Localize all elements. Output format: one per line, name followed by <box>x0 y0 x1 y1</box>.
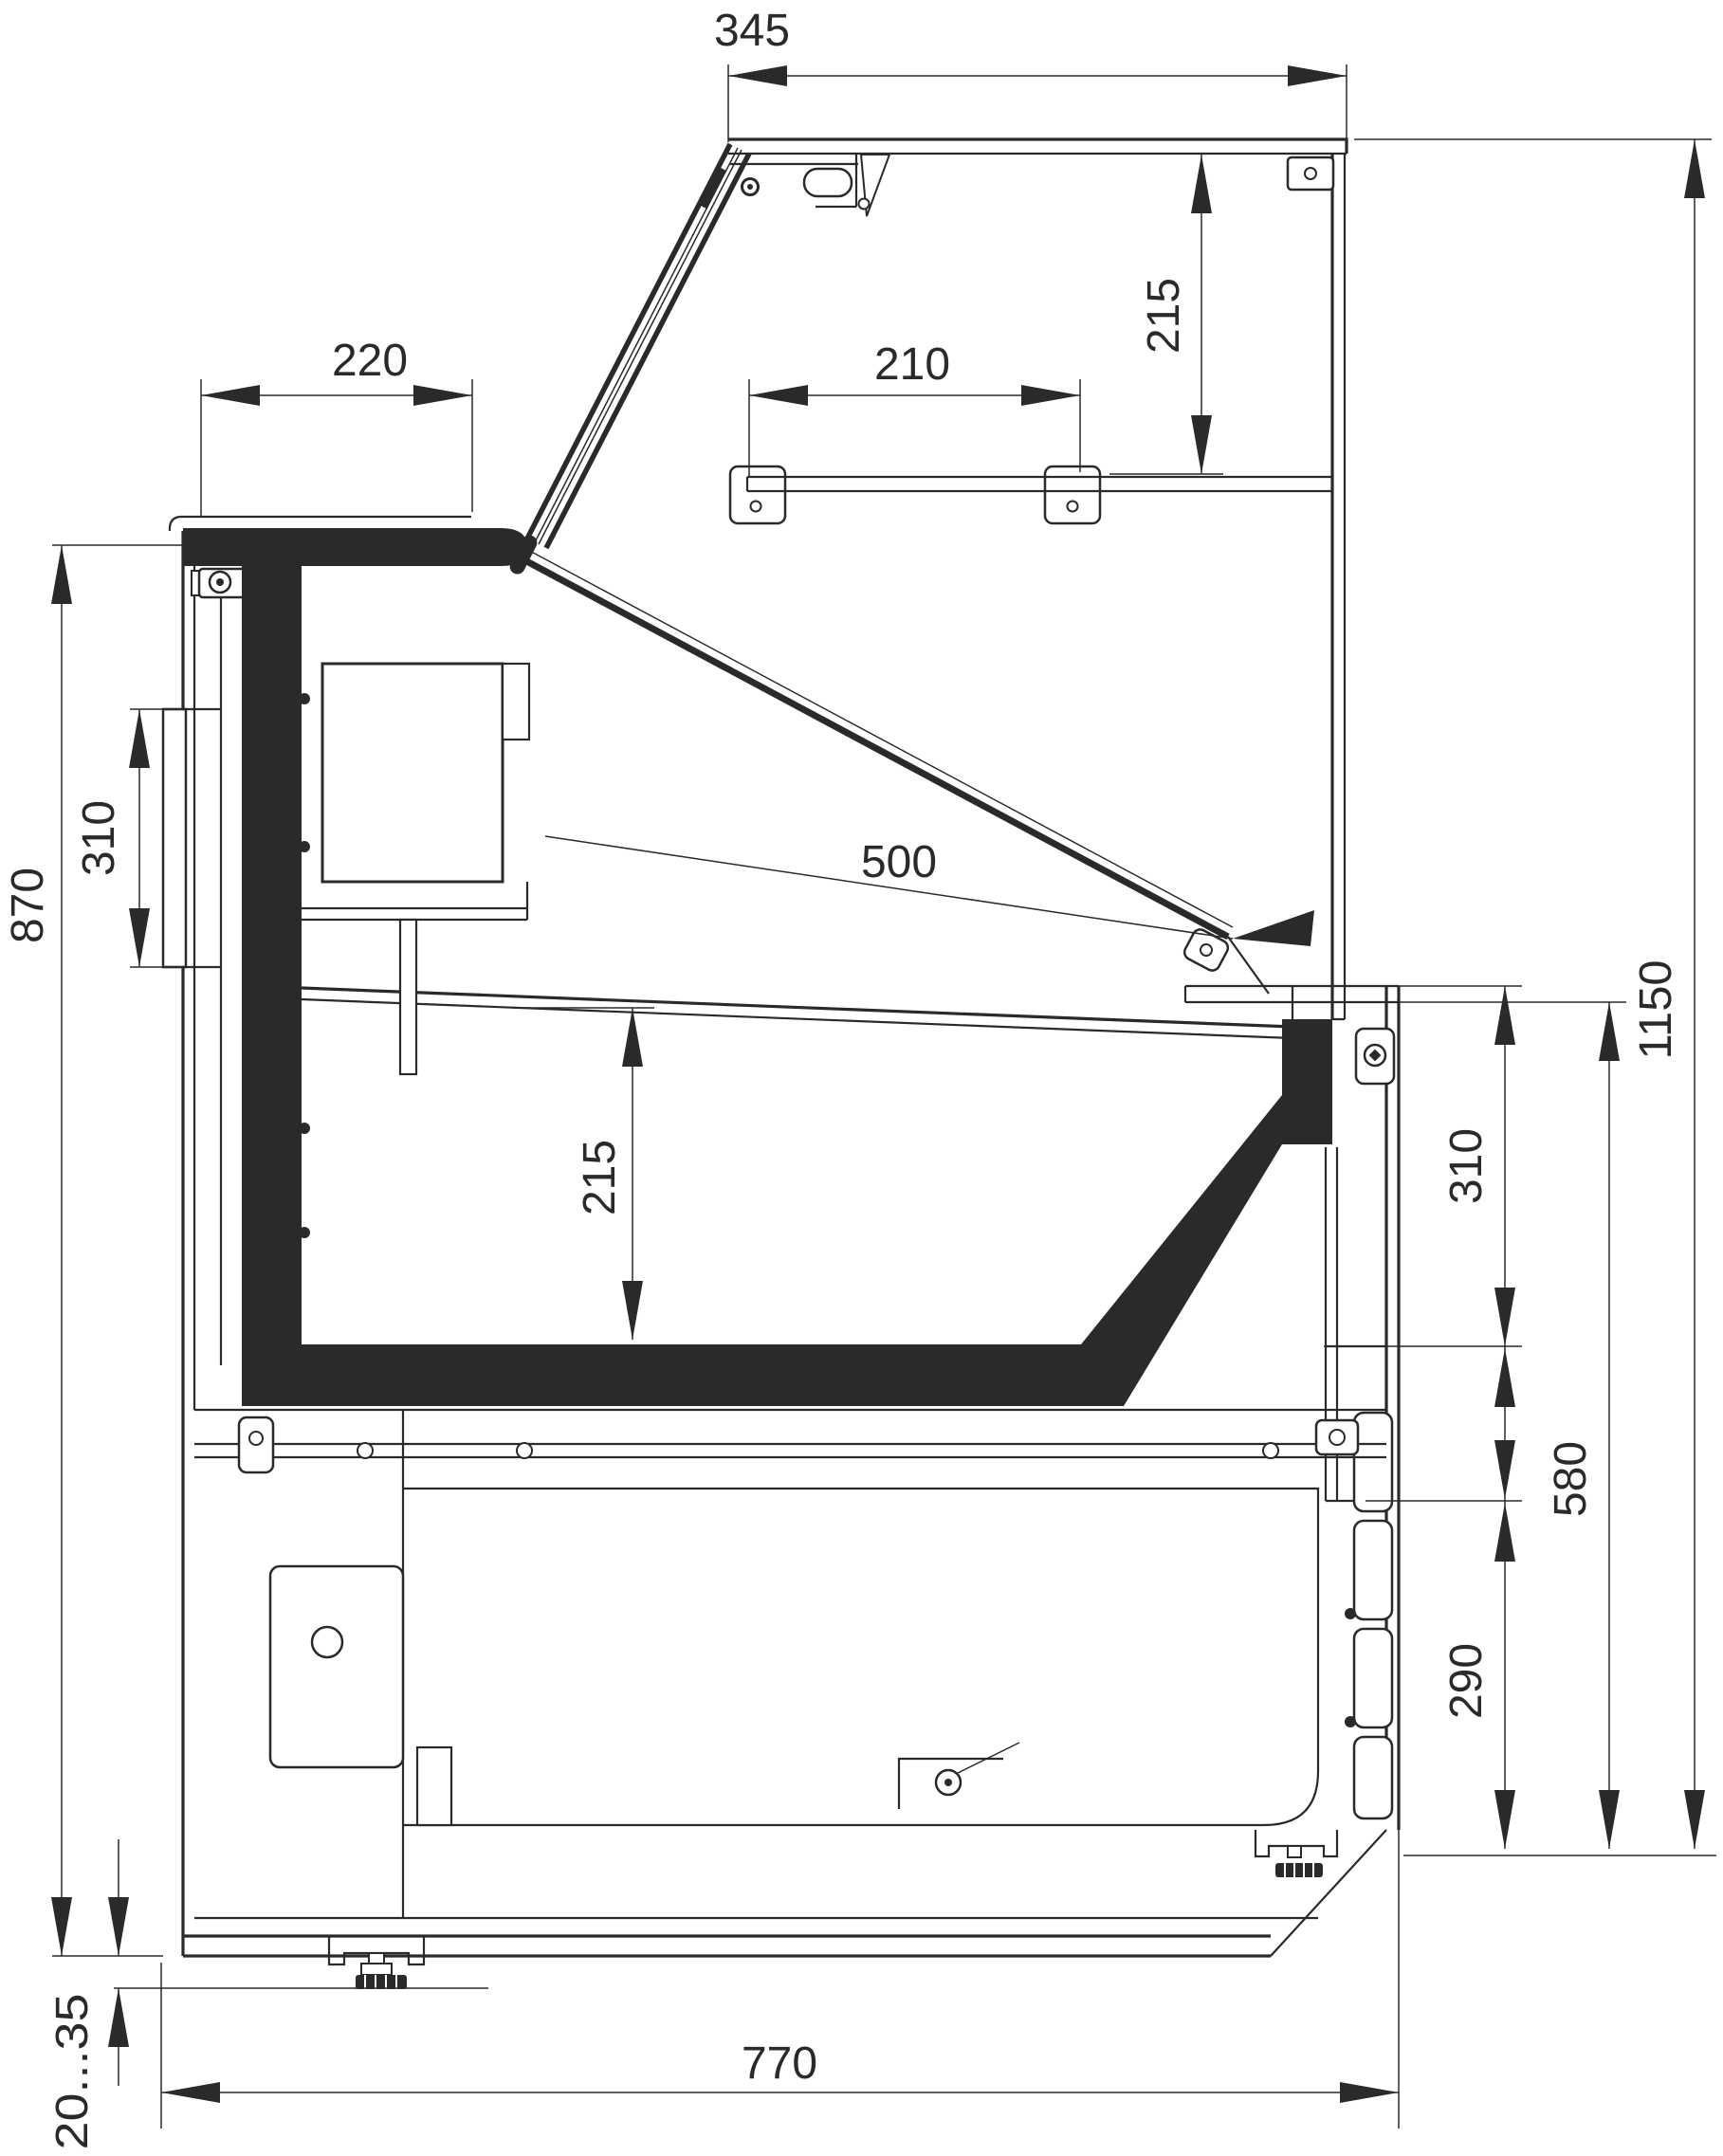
louver <box>1354 1521 1392 1619</box>
dim-label-870: 870 <box>3 868 53 943</box>
arrowhead <box>1494 1288 1515 1346</box>
well-back-wall <box>242 566 302 1344</box>
dim-front-lower-height: 580 <box>1399 1002 1626 1849</box>
dim-label-310-right: 310 <box>1441 1128 1492 1204</box>
arrowhead <box>1599 1002 1620 1061</box>
arrowhead <box>1494 1503 1515 1562</box>
dim-shelf-length: 210 <box>749 339 1080 476</box>
back-wall <box>1288 154 1345 1019</box>
display-case-cross-section: 345 215 220 210 500 310 <box>0 0 1723 2156</box>
right-adjustable-foot <box>1256 1830 1337 1877</box>
dim-label-290: 290 <box>1441 1643 1492 1719</box>
arrowhead <box>1684 139 1705 198</box>
evaporator-box <box>322 664 503 882</box>
louver <box>1354 1737 1392 1818</box>
drain-pipe <box>400 920 416 1074</box>
arrowhead <box>622 1008 643 1067</box>
dim-label-215-mid: 215 <box>575 1140 625 1215</box>
arrowhead <box>129 709 150 768</box>
dim-label-345: 345 <box>714 6 790 56</box>
louver <box>1354 1629 1392 1727</box>
display-deck <box>302 986 1292 1038</box>
dim-countertop-depth: 220 <box>201 336 472 517</box>
shelf-foot <box>730 466 785 523</box>
louver <box>1354 1413 1392 1511</box>
dim-canopy-depth: 345 <box>714 6 1347 142</box>
machine-tub <box>403 1489 1318 1825</box>
left-adjustable-foot <box>329 1936 424 1989</box>
dim-label-20-35: 20...35 <box>47 1994 98 2150</box>
canopy-shelf <box>730 466 1332 523</box>
dim-label-215-top: 215 <box>1139 278 1189 354</box>
arrowhead <box>728 65 787 86</box>
arrowhead <box>1494 1790 1515 1849</box>
front-glass <box>507 144 749 576</box>
arrowhead <box>1599 1790 1620 1849</box>
arrowhead <box>108 1897 129 1956</box>
well-bottom <box>242 1344 1086 1406</box>
technical-drawing-page: 345 215 220 210 500 310 <box>0 0 1723 2156</box>
arrowhead <box>1288 65 1347 86</box>
base <box>183 1830 1386 1956</box>
arrowhead <box>1494 1348 1515 1407</box>
dim-worktop-height: 870 <box>3 545 182 1956</box>
arrowhead <box>622 1281 643 1340</box>
arrowhead <box>1494 1440 1515 1499</box>
dim-canopy-front-height: 215 <box>1109 155 1223 474</box>
evaporator-unit <box>302 664 529 920</box>
dim-base-depth: 770 <box>161 1825 1399 2129</box>
arrowhead <box>108 1988 129 2047</box>
dim-label-310-left: 310 <box>74 800 124 876</box>
front-panel <box>1326 1147 1392 1818</box>
arrowhead <box>51 1897 72 1956</box>
arrowhead <box>1340 2082 1399 2103</box>
dim-well-depth: 215 <box>512 1008 654 1340</box>
arrowhead <box>1233 910 1314 946</box>
well-front-slope <box>1081 1095 1282 1406</box>
dim-foot-adjustment: 20...35 <box>47 1839 129 2150</box>
dim-label-580: 580 <box>1546 1441 1596 1517</box>
foot-pad <box>1275 1863 1323 1877</box>
foot-pad <box>356 1975 407 1989</box>
side-service-panel <box>163 709 186 967</box>
arrowhead <box>51 545 72 604</box>
arrowhead <box>201 385 260 406</box>
dim-label-770: 770 <box>742 2038 817 2089</box>
shelf-foot <box>1045 466 1100 523</box>
arrowhead <box>1191 155 1212 213</box>
arrowhead <box>161 2082 220 2103</box>
pipe-stub <box>417 1747 451 1825</box>
dim-label-220: 220 <box>332 336 408 386</box>
dim-label-1150: 1150 <box>1631 960 1681 1060</box>
canopy-panel <box>703 139 1347 216</box>
dim-label-210: 210 <box>874 339 950 390</box>
arrowhead <box>1021 385 1080 406</box>
dim-side-panel-height: 310 <box>74 709 221 967</box>
drip-tray <box>302 882 527 920</box>
dim-label-500: 500 <box>861 837 937 887</box>
arrowhead <box>413 385 472 406</box>
lower-cabinet <box>194 1410 1386 1918</box>
countertop-band <box>183 528 527 566</box>
dim-overall-height: 1150 <box>1354 139 1712 1849</box>
junction-box <box>270 1566 403 1767</box>
arrowhead <box>749 385 808 406</box>
lamp-tube <box>804 169 852 196</box>
arrowhead <box>1494 986 1515 1045</box>
arrowhead <box>1684 1790 1705 1849</box>
arrowhead <box>1191 415 1212 474</box>
arrowhead <box>129 908 150 967</box>
